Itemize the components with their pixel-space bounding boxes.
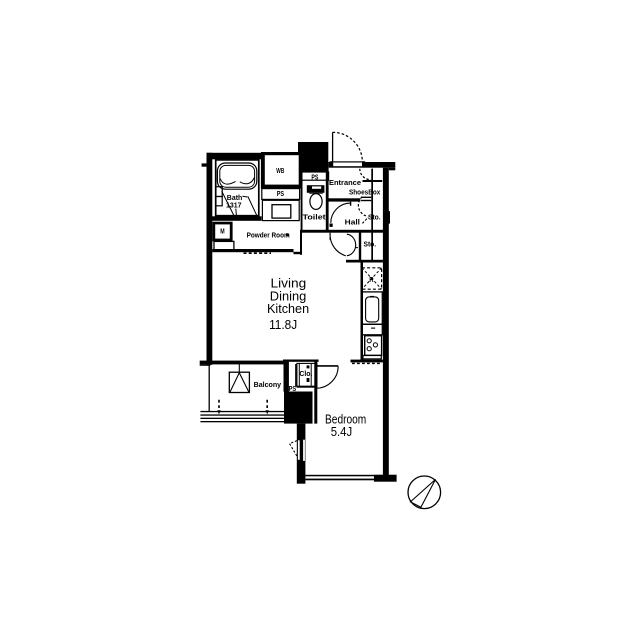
svg-text:M: M [220,226,224,235]
svg-text:Hall: Hall [345,217,360,226]
svg-text:11.8J: 11.8J [269,318,297,332]
svg-text:Kitchen: Kitchen [267,302,309,316]
svg-text:5.4J: 5.4J [331,425,353,439]
svg-text:PS: PS [277,189,284,198]
svg-text:Clo.: Clo. [299,369,312,378]
svg-text:PS: PS [311,173,318,182]
svg-text:Sto.: Sto. [368,213,381,222]
svg-text:Entrance: Entrance [329,178,361,187]
svg-text:1317: 1317 [226,201,242,210]
svg-text:Powder Room: Powder Room [247,231,290,240]
svg-text:Balcony: Balcony [254,380,282,389]
svg-text:R: R [369,275,374,284]
svg-text:ShoesBox: ShoesBox [349,187,381,196]
svg-text:Sto.: Sto. [364,240,377,249]
svg-text:WB: WB [276,166,284,175]
svg-text:Toilet: Toilet [303,213,327,222]
